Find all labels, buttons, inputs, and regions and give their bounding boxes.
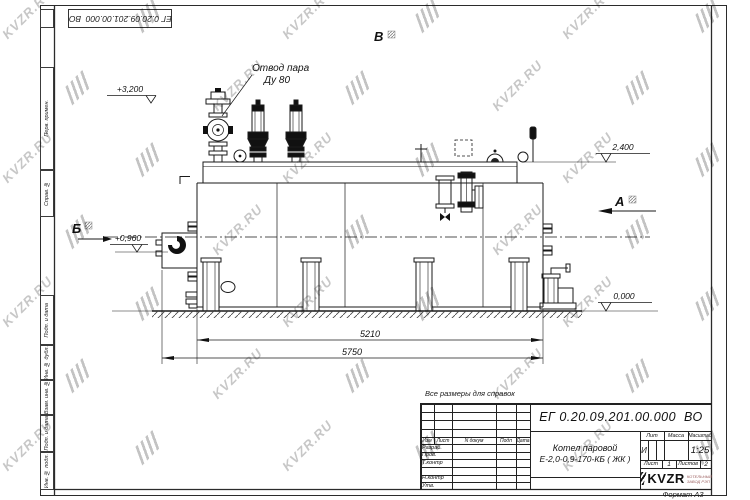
tb-role-prov: Пров. xyxy=(420,452,452,460)
end-fitting xyxy=(487,127,536,162)
rear-fittings xyxy=(543,224,552,255)
elevation-marks xyxy=(107,96,652,312)
margin-box-inv-podl: Инв. № подл. xyxy=(40,452,54,490)
tb-role-nkontr: Н.контр xyxy=(420,475,452,483)
margin-box-podp-data-1: Подп. и дата xyxy=(40,295,54,345)
front-nozzles xyxy=(186,222,197,308)
boiler-body xyxy=(197,183,543,307)
margin-box-vzam-inv: Взам. инв. № xyxy=(40,380,54,415)
tb-massa-label: Масса xyxy=(664,431,688,440)
boiler-linework xyxy=(78,31,658,364)
elevation-3200-label: +3,200 xyxy=(117,84,144,94)
kvzr-logo-text: KVZR xyxy=(647,471,684,486)
margin-box-perv-primen: Перв. примен. xyxy=(40,67,54,170)
tb-doc-number: ЕГ 0.20.09.201.00.000 ВО xyxy=(530,403,712,431)
steam-outlet-valve xyxy=(203,88,233,162)
tb-product-line2: Е-2,0-0,9-170-КБ ( ЖК ) xyxy=(540,454,631,465)
safety-valve-1 xyxy=(248,100,268,162)
margin-label: Справ. № xyxy=(44,181,50,206)
tb-sheets-label: Листов xyxy=(676,460,700,468)
tb-role-utv: Утв. xyxy=(420,482,452,490)
format-label: Формат А3 xyxy=(648,490,718,499)
view-arrows xyxy=(78,31,656,242)
ground-line xyxy=(112,311,658,318)
margin-label: Инв. № дубл. xyxy=(44,346,50,380)
margin-label: Подп. и дата xyxy=(44,416,50,450)
top-nozzle xyxy=(415,144,427,162)
tb-col-ndokum: N докум xyxy=(452,437,496,444)
support-legs xyxy=(201,258,529,311)
tb-lit-value: И xyxy=(640,440,648,460)
margin-label: Подп. и дата xyxy=(44,303,50,337)
reference-dimensions-note: Все размеры для справок xyxy=(425,389,515,398)
view-b-label: Б xyxy=(72,221,81,236)
tb-lit-label: Лит xyxy=(640,431,664,440)
corner-doc-number: ЕГ 0.20.09.201.00.000 ВО xyxy=(69,14,172,24)
callout-line2: Ду 80 xyxy=(263,75,290,86)
margin-label: Взам. инв. № xyxy=(44,380,50,414)
kvzr-sub-line1: КОТЕЛЬНЫЙ xyxy=(687,474,712,479)
tb-product-line1: Котел паровой xyxy=(553,443,618,454)
tb-logo-cell: KVZR КОТЕЛЬНЫЙ ЗАВОД РЭП xyxy=(640,468,712,489)
tb-role-tkontr: Т.контр xyxy=(420,459,452,467)
tb-sheet-label: Лист xyxy=(640,460,662,468)
margin-box-podp-data-2: Подп. и дата xyxy=(40,415,54,452)
drawing-sheet: { "watermark": { "text": "KVZR.RU" }, "c… xyxy=(0,0,750,500)
view-a-label: А xyxy=(614,194,624,209)
tb-col-podp: Подп xyxy=(496,437,516,444)
tb-massa-value xyxy=(664,440,688,460)
sight-hole xyxy=(221,282,235,293)
dim-5210-label: 5210 xyxy=(360,329,380,339)
phantom-outline xyxy=(455,140,472,156)
callout-line1: Отвод пара xyxy=(252,63,310,74)
callout-leader xyxy=(222,75,252,116)
margin-box-inv-dubl: Инв. № дубл. xyxy=(40,345,54,380)
tb-col-data: Дата xyxy=(516,437,530,444)
margin-label: Инв. № подл. xyxy=(44,454,50,488)
title-block: Изм Лист N докум Подп Дата Разраб. Пров.… xyxy=(420,403,712,490)
feed-pump xyxy=(540,264,576,309)
elevation-0000-label: 0,000 xyxy=(613,291,635,301)
tb-scale-label: Масштаб xyxy=(688,431,712,440)
margin-label: Перв. примен. xyxy=(44,100,50,137)
elevation-0960-label: +0,960 xyxy=(115,233,142,243)
corner-doc-number-stamp: ЕГ 0.20.09.201.00.000 ВО xyxy=(68,9,172,28)
tb-sheets-value: 2 xyxy=(700,460,712,468)
drum-dome xyxy=(234,150,246,162)
safety-valve-2 xyxy=(286,100,306,162)
tb-scale-value: 1:25 xyxy=(688,440,712,460)
margin-box-sprav-n: Справ. № xyxy=(40,170,54,217)
margin-box-empty xyxy=(40,9,54,28)
tb-col-izm: Изм xyxy=(420,437,434,444)
elevation-2400-label: 2,400 xyxy=(611,142,634,152)
tb-product-name: Котел паровой Е-2,0-0,9-170-КБ ( ЖК ) xyxy=(530,431,640,477)
tb-col-list: Лист xyxy=(434,437,452,444)
kvzr-sub-line2: ЗАВОД РЭП xyxy=(687,479,712,484)
tb-sheet-value: 1 xyxy=(662,460,676,468)
level-gauge xyxy=(436,172,483,221)
kvzr-logo-subtitle: КОТЕЛЬНЫЙ ЗАВОД РЭП xyxy=(687,474,712,484)
burner-assembly xyxy=(156,233,197,268)
tb-role-razrab: Разраб. xyxy=(420,444,452,452)
kvzr-spring-icon xyxy=(640,472,647,485)
view-v-label: В xyxy=(374,29,383,44)
dim-5750-label: 5750 xyxy=(342,347,362,357)
